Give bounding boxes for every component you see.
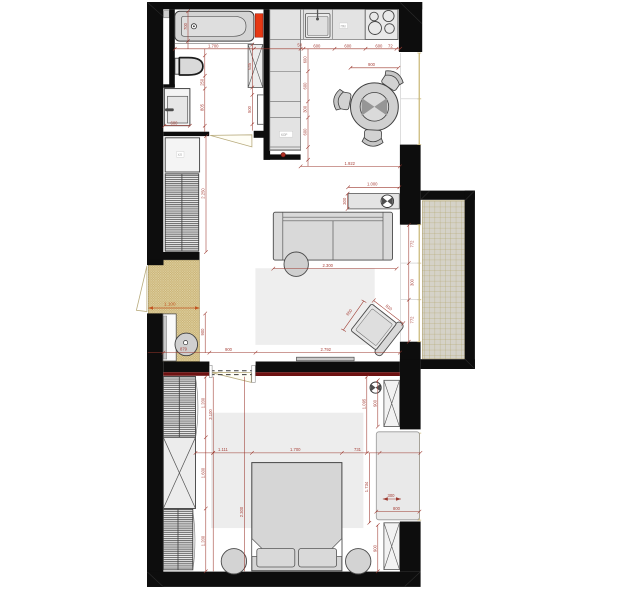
svg-text:2.300: 2.300 bbox=[323, 263, 334, 268]
svg-text:1.095: 1.095 bbox=[361, 398, 366, 409]
svg-text:300: 300 bbox=[342, 197, 347, 205]
svg-text:1.922: 1.922 bbox=[345, 161, 356, 166]
svg-text:2.300: 2.300 bbox=[239, 506, 244, 517]
svg-text:1.200: 1.200 bbox=[200, 397, 205, 408]
svg-text:600: 600 bbox=[344, 43, 352, 48]
svg-text:1.100: 1.100 bbox=[164, 302, 176, 307]
svg-text:1.700: 1.700 bbox=[290, 447, 301, 452]
svg-text:900: 900 bbox=[368, 62, 376, 67]
svg-text:300: 300 bbox=[409, 278, 414, 286]
svg-text:772: 772 bbox=[409, 240, 414, 248]
svg-text:1.600: 1.600 bbox=[200, 467, 205, 478]
svg-text:600: 600 bbox=[171, 120, 179, 125]
svg-text:1.111: 1.111 bbox=[218, 447, 229, 452]
svg-text:772: 772 bbox=[409, 316, 414, 324]
svg-text:500: 500 bbox=[247, 105, 252, 113]
svg-text:1.700: 1.700 bbox=[208, 43, 219, 48]
svg-text:250: 250 bbox=[199, 78, 204, 86]
svg-text:900: 900 bbox=[372, 399, 377, 407]
svg-text:805: 805 bbox=[199, 103, 204, 111]
svg-text:72: 72 bbox=[388, 43, 393, 48]
svg-text:900: 900 bbox=[372, 544, 377, 552]
svg-text:600: 600 bbox=[303, 82, 308, 90]
svg-text:300: 300 bbox=[388, 493, 396, 498]
svg-text:731: 731 bbox=[354, 447, 362, 452]
svg-text:КОР: КОР bbox=[281, 133, 287, 137]
svg-text:ПМ: ПМ bbox=[341, 24, 346, 28]
svg-text:600: 600 bbox=[303, 56, 308, 64]
svg-text:900: 900 bbox=[225, 347, 233, 352]
svg-text:50: 50 bbox=[297, 42, 302, 47]
svg-text:3.100: 3.100 bbox=[208, 409, 213, 420]
svg-text:879: 879 bbox=[180, 347, 188, 352]
svg-text:1.734: 1.734 bbox=[364, 481, 369, 492]
svg-text:300: 300 bbox=[303, 105, 308, 113]
svg-text:2.792: 2.792 bbox=[321, 347, 332, 352]
svg-text:2.250: 2.250 bbox=[201, 188, 206, 199]
svg-text:600: 600 bbox=[375, 43, 383, 48]
svg-text:1.000: 1.000 bbox=[367, 182, 378, 187]
svg-text:600: 600 bbox=[313, 43, 321, 48]
svg-text:645: 645 bbox=[247, 62, 252, 70]
svg-text:ХЛ: ХЛ bbox=[178, 153, 182, 157]
svg-text:1.200: 1.200 bbox=[200, 535, 205, 546]
svg-text:700: 700 bbox=[183, 22, 188, 30]
svg-text:600: 600 bbox=[303, 128, 308, 136]
svg-text:900: 900 bbox=[200, 328, 205, 336]
svg-text:800: 800 bbox=[393, 506, 401, 511]
